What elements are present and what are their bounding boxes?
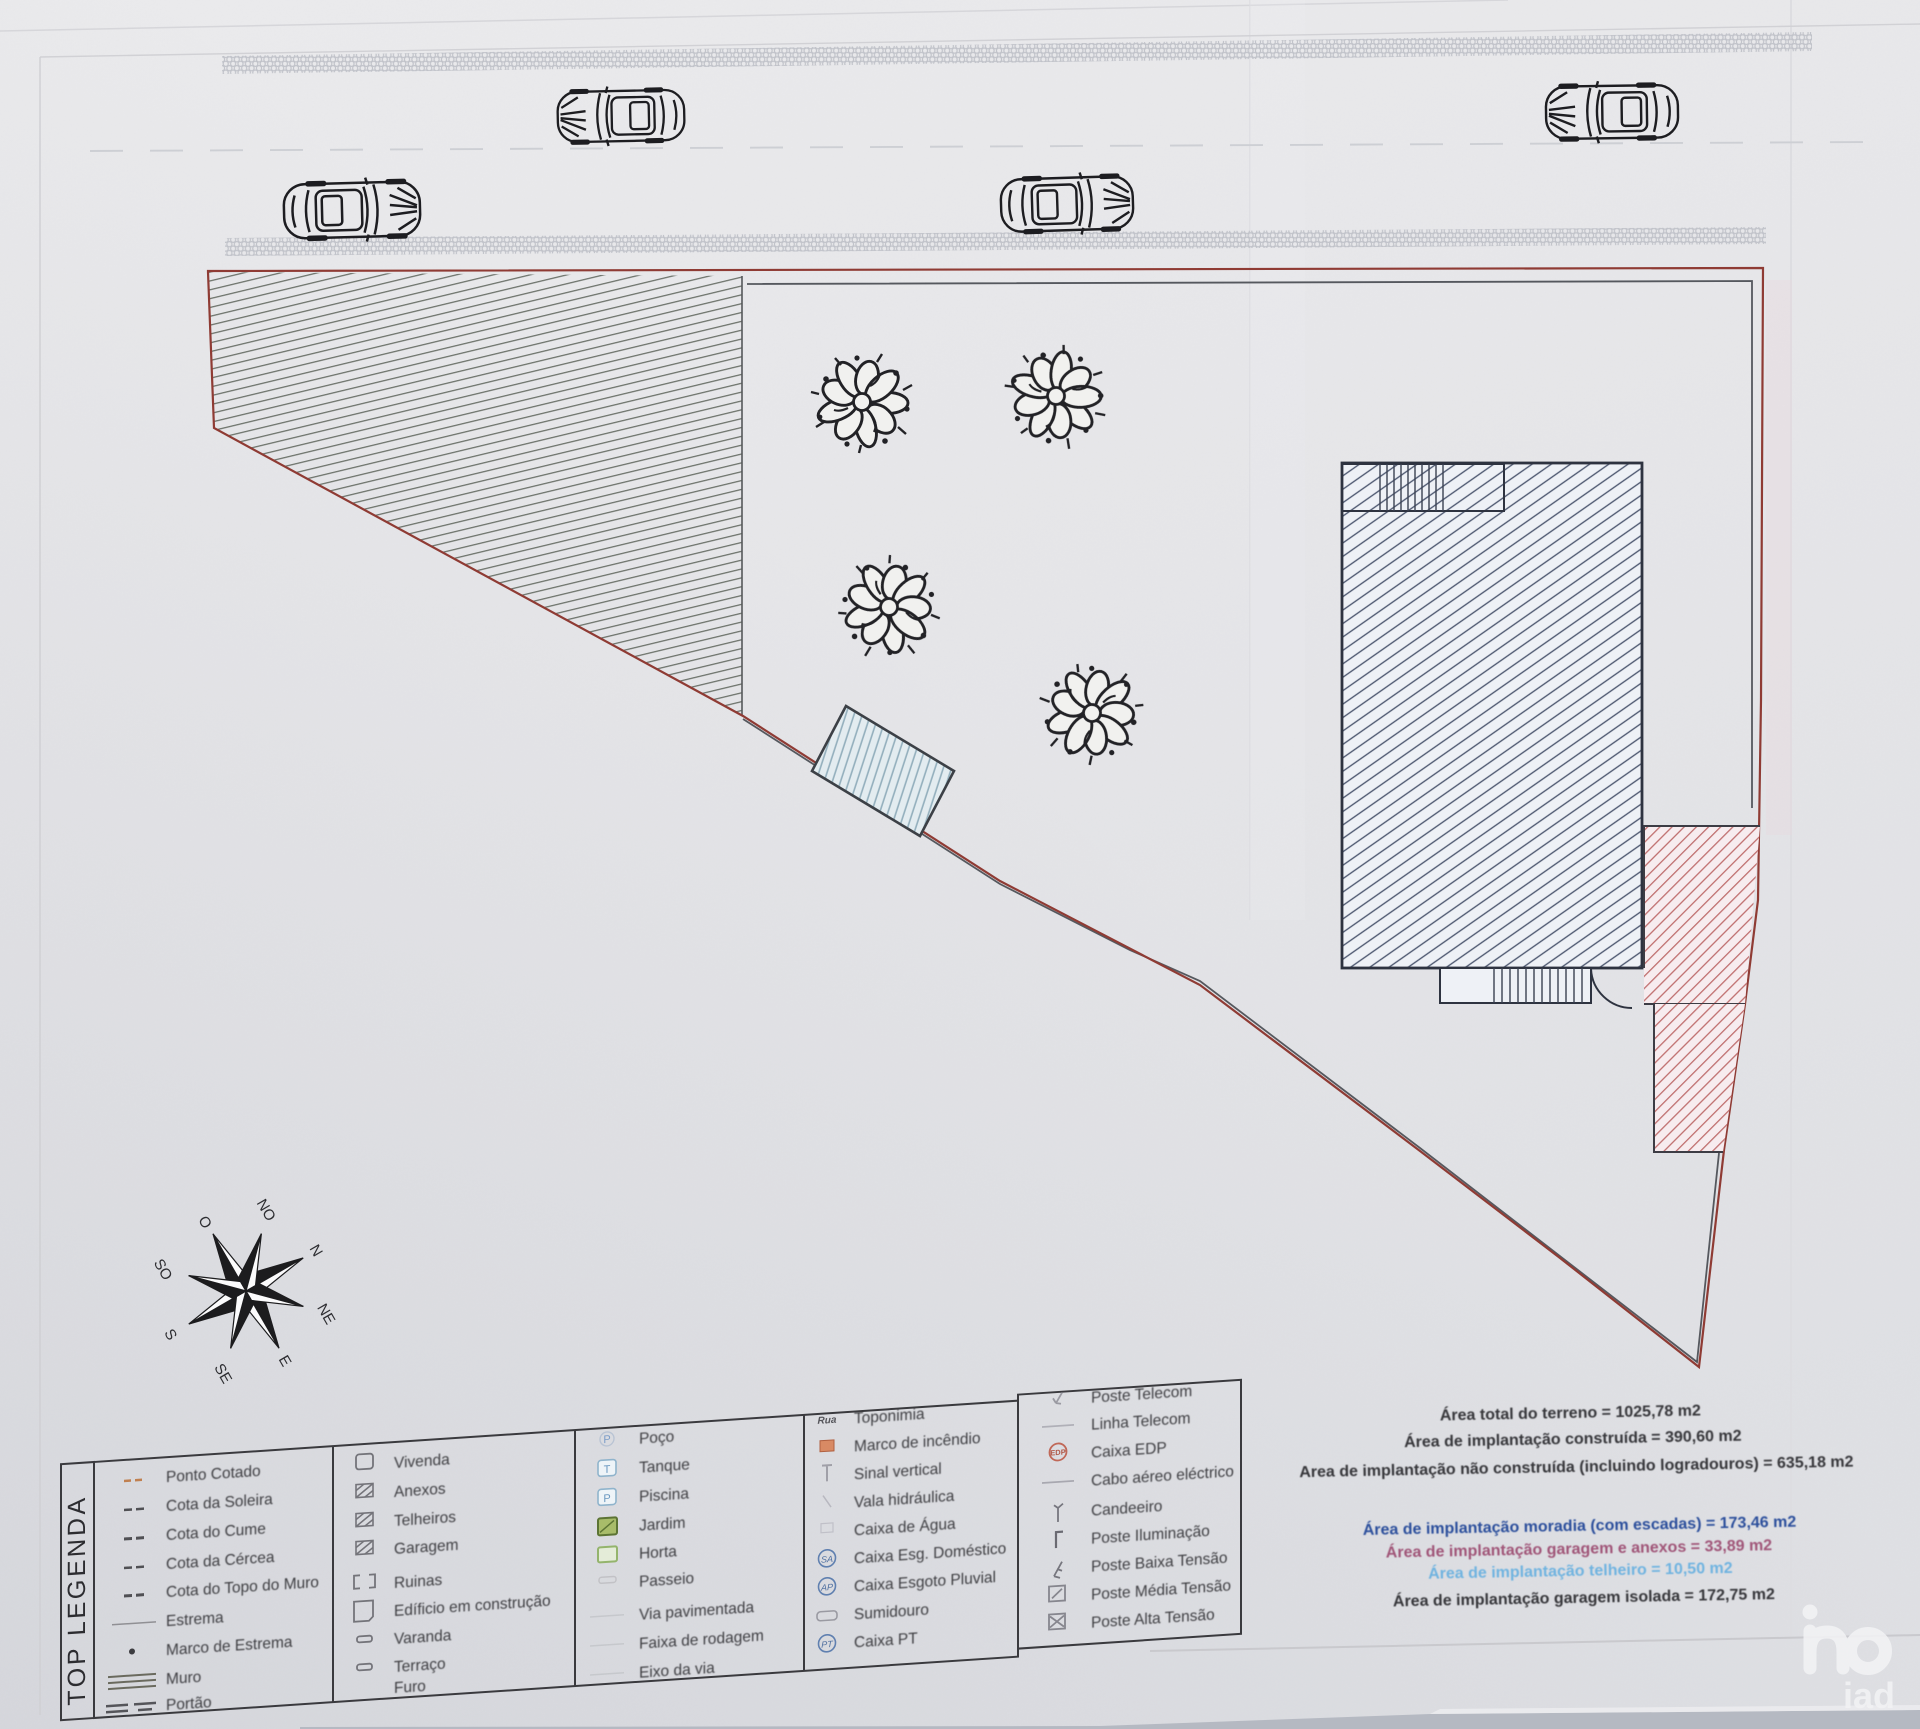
svg-text:EDP: EDP — [1050, 1447, 1065, 1457]
svg-text:iad: iad — [1843, 1675, 1895, 1716]
svg-text:Horta: Horta — [639, 1543, 677, 1563]
svg-text:PT: PT — [821, 1639, 834, 1650]
svg-text:Jardim: Jardim — [639, 1515, 685, 1535]
svg-text:Portão: Portão — [166, 1694, 212, 1714]
svg-text:P: P — [603, 1493, 610, 1505]
svg-text:Piscina: Piscina — [639, 1485, 689, 1505]
svg-text:TOP LEGENDA: TOP LEGENDA — [63, 1494, 91, 1706]
svg-text:Rua: Rua — [818, 1415, 837, 1427]
svg-text:SA: SA — [821, 1554, 833, 1565]
svg-text:AP: AP — [820, 1582, 833, 1593]
svg-text:Furo: Furo — [394, 1678, 426, 1697]
svg-text:Poço: Poço — [639, 1428, 674, 1447]
svg-text:Anexos: Anexos — [394, 1481, 446, 1501]
svg-text:P: P — [603, 1434, 610, 1446]
svg-text:Tanque: Tanque — [639, 1456, 690, 1476]
svg-text:Ruinas: Ruinas — [394, 1572, 442, 1592]
svg-text:Terraço: Terraço — [394, 1656, 446, 1676]
svg-text:Muro: Muro — [166, 1669, 201, 1688]
svg-text:T: T — [604, 1464, 611, 1476]
